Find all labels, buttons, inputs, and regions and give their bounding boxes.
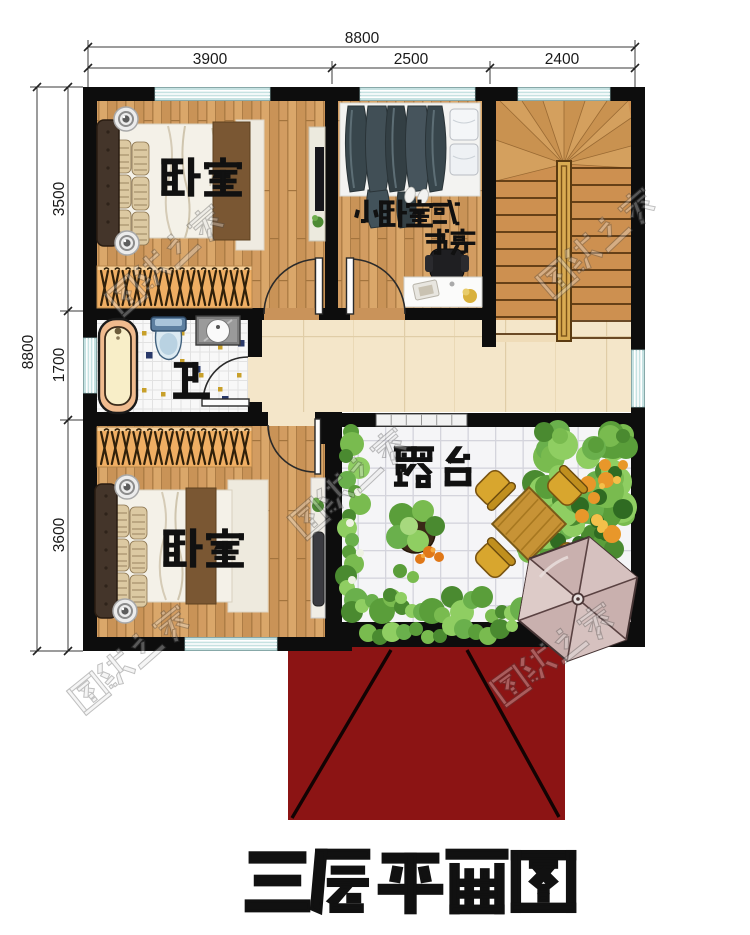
svg-text:1700: 1700 <box>51 347 68 382</box>
svg-text:2500: 2500 <box>394 51 429 68</box>
svg-text:8800: 8800 <box>345 30 380 47</box>
svg-text:3500: 3500 <box>51 181 68 216</box>
svg-text:2400: 2400 <box>545 51 580 68</box>
svg-text:3900: 3900 <box>193 51 228 68</box>
svg-text:3600: 3600 <box>51 517 68 552</box>
svg-text:8800: 8800 <box>20 334 37 369</box>
